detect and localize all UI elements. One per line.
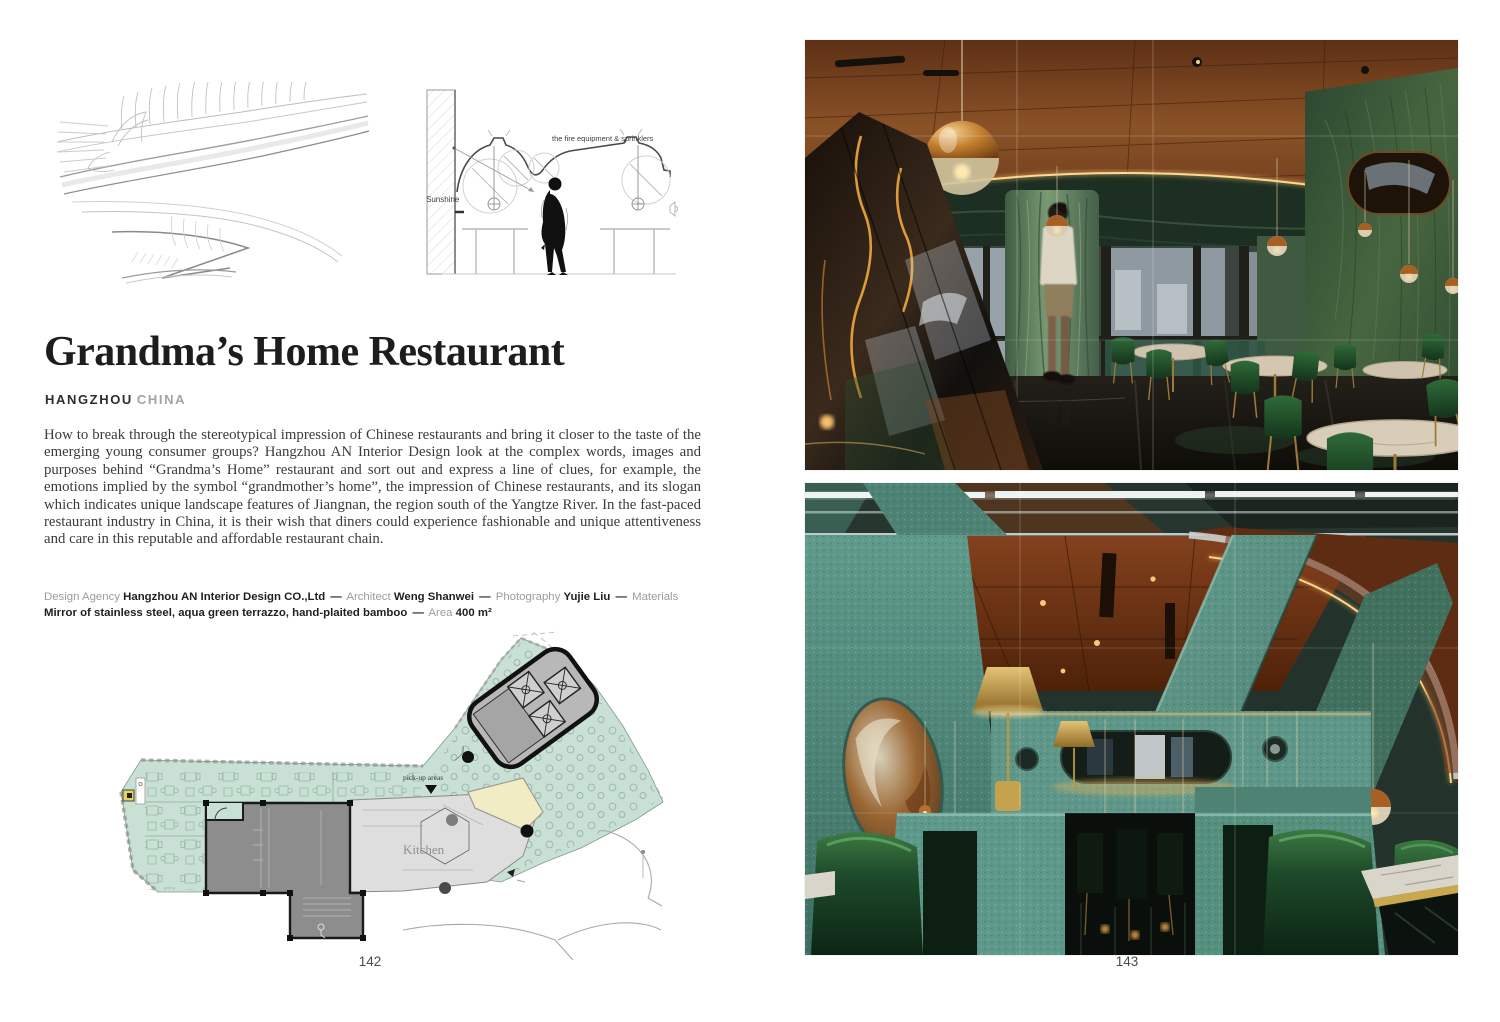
credit-value: 400 m² [456,607,492,619]
project-credits: Design Agency Hangzhou AN Interior Desig… [44,589,706,621]
floor-plan-drawing: Kitchen [103,630,663,960]
section-diagram: the fire equipment & sprinklers Sunshine [424,88,680,284]
location-city: HANGZHOU [45,392,133,407]
credit-value: Mirror of stainless steel, aqua green te… [44,607,407,619]
credit-label: Photography [496,591,564,603]
credit-value: Yujie Liu [564,591,611,603]
page-number-left: 142 [340,954,400,969]
credit-separator: — [410,607,425,619]
credit-separator: — [614,591,629,603]
booth-seating-photo [805,483,1458,955]
wall-section [427,90,455,274]
plan-kitchen-label: Kitchen [403,842,445,857]
credit-separator: — [477,591,492,603]
table-symbols [462,229,670,274]
credit-label: Architect [346,591,393,603]
location-line: HANGZHOUCHINA [45,392,186,407]
left-page: the fire equipment & sprinklers Sunshine… [0,0,750,1022]
page-title: Grandma’s Home Restaurant [44,331,704,373]
credit-value: Weng Shanwei [394,591,474,603]
credit-label: Materials [632,591,678,603]
dining-room-photo [805,40,1458,470]
location-country: CHINA [137,392,186,407]
intro-paragraph: How to break through the stereotypical i… [44,427,701,549]
plan-service-block [206,803,363,938]
concept-sketch-drawing [52,82,372,302]
right-page: 143 [750,0,1500,1022]
credit-value: Hangzhou AN Interior Design CO.,Ltd [123,591,325,603]
plan-pickup-label: pick-up areas [403,773,443,782]
center-corridor [1063,813,1197,955]
diagram-label-sunshine: Sunshine [426,195,460,204]
diagram-label-sprinklers: the fire equipment & sprinklers [552,134,654,143]
pendant-lamp-symbols [488,145,644,210]
credit-separator: — [328,591,343,603]
page-number-right: 143 [1097,954,1157,969]
person-silhouette [541,178,568,276]
credit-label: Area [428,607,455,619]
credit-label: Design Agency [44,591,123,603]
